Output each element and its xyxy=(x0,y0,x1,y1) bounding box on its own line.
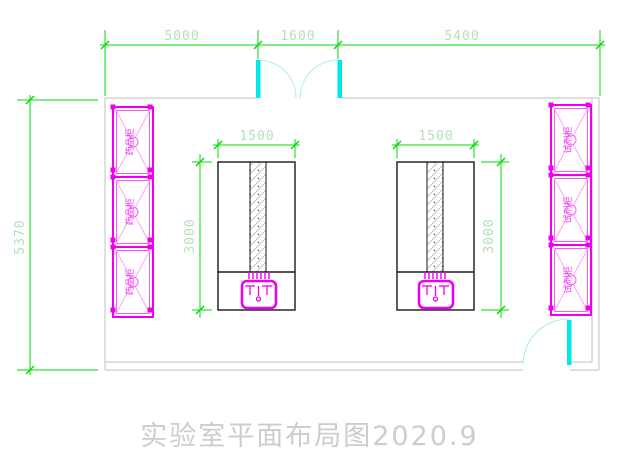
door-swing-arc-left xyxy=(258,60,296,98)
sink-symbol xyxy=(242,272,276,308)
room-walls xyxy=(105,98,599,370)
sink-symbol xyxy=(419,272,453,308)
dim-label-bench-width-right: 1500 xyxy=(418,129,453,144)
door-leaf-left xyxy=(256,60,261,98)
dim-label-1600: 1600 xyxy=(280,29,315,44)
double-door-top xyxy=(256,60,342,98)
drawing-title: 实验室平面布局图2020.9 xyxy=(0,414,619,453)
floor-plan-drawing: 5000 1600 5400 5370 xyxy=(0,0,619,469)
dim-label-5000: 5000 xyxy=(164,29,199,44)
floor-plan-canvas: 5000 1600 5400 5370 xyxy=(0,0,619,469)
dim-label-5370: 5370 xyxy=(13,219,28,254)
door-leaf xyxy=(567,320,572,365)
cabinet-left-2: 药品柜 xyxy=(111,175,154,248)
cabinet-right-1: 试剂柜 xyxy=(549,103,592,176)
cabinet-column-right: 试剂柜 试剂柜 试剂柜 xyxy=(549,103,592,316)
dim-label-5400: 5400 xyxy=(444,29,479,44)
cabinet-label: 试剂柜 xyxy=(562,266,574,293)
dim-label-bench-width-left: 1500 xyxy=(239,129,274,144)
dim-label-bench-depth-right: 3000 xyxy=(482,218,497,253)
dim-label-bench-depth-left: 3000 xyxy=(183,218,198,253)
bench-reagent-strip xyxy=(250,162,266,272)
cabinet-label: 药品柜 xyxy=(124,198,136,225)
door-swing-arc xyxy=(523,319,569,365)
lab-bench-left xyxy=(218,162,295,310)
door-swing-arc-right xyxy=(300,60,338,98)
cabinet-left-1: 药品柜 xyxy=(111,105,154,178)
cabinet-right-2: 试剂柜 xyxy=(549,173,592,246)
lab-bench-right xyxy=(397,162,474,310)
dimension-left-overall xyxy=(17,95,98,375)
cabinet-label: 药品柜 xyxy=(124,128,136,155)
sink-drain-hatch xyxy=(246,272,271,279)
sink-drain-hatch xyxy=(423,272,448,279)
cabinet-column-left: 药品柜 药品柜 药品柜 xyxy=(111,105,154,318)
bench-reagent-strip xyxy=(427,162,443,272)
cabinet-label: 试剂柜 xyxy=(562,196,574,223)
single-door-bottom-right xyxy=(523,319,572,365)
cabinet-label: 药品柜 xyxy=(124,268,136,295)
cabinet-label: 试剂柜 xyxy=(562,126,574,153)
door-leaf-right xyxy=(338,60,343,98)
cabinet-left-3: 药品柜 xyxy=(111,245,154,318)
cabinet-right-3: 试剂柜 xyxy=(549,243,592,316)
